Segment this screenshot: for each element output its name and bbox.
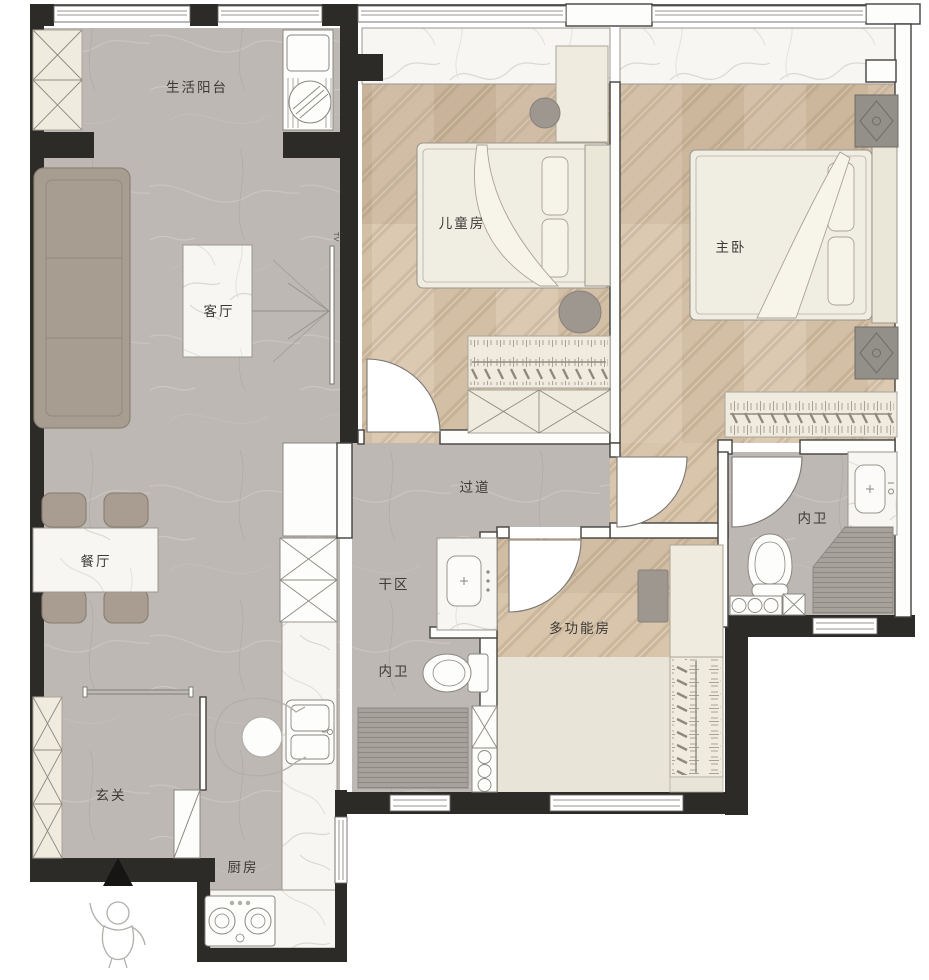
nightstand-bottom xyxy=(855,327,898,379)
room-label-corridor: 过道 xyxy=(460,480,491,495)
bay-window-sill-master xyxy=(620,28,895,84)
wall-living-bedroom xyxy=(340,26,358,443)
window-top-3 xyxy=(358,6,566,22)
floorplan-drawing: TV xyxy=(0,0,929,980)
fridge-cabinet xyxy=(280,538,337,622)
window-top-1 xyxy=(54,6,190,22)
room-label-kitchen: 厨房 xyxy=(228,860,259,875)
bath-right-vanity xyxy=(848,452,897,535)
bath-left-storage xyxy=(472,706,497,792)
room-label-balcony: 生活阳台 xyxy=(166,80,228,95)
shoe-cabinet xyxy=(33,697,62,858)
wall-corridor-bottom xyxy=(581,527,610,538)
kids-desk xyxy=(556,46,608,142)
room-label-master-bedroom: 主卧 xyxy=(716,240,747,255)
master-bed xyxy=(690,147,897,323)
room-label-entry: 玄关 xyxy=(96,787,127,803)
sofa xyxy=(34,168,130,428)
window-bath-right xyxy=(813,618,877,634)
window-bottom-1 xyxy=(390,795,450,811)
shower-left xyxy=(358,708,468,788)
room-label-bath-left: 内卫 xyxy=(379,664,410,679)
window-top-4 xyxy=(652,6,866,22)
master-wardrobe xyxy=(725,392,897,437)
room-label-living: 客厅 xyxy=(204,303,235,319)
bath-right-storage xyxy=(730,594,805,615)
nightstand-top xyxy=(855,95,898,147)
kitchen-tall-cabinet xyxy=(283,443,337,536)
kids-stool xyxy=(530,98,560,128)
room-label-kids-bedroom: 儿童房 xyxy=(439,215,486,231)
window-bottom-2 xyxy=(550,795,683,811)
room-label-dining: 餐厅 xyxy=(81,554,112,569)
wall-balcony-pier-right xyxy=(283,132,358,158)
door-kitchen-leaf xyxy=(174,790,200,858)
room-label-dry-area: 干区 xyxy=(379,577,410,592)
stove xyxy=(205,896,275,946)
multifunction-cabinet xyxy=(670,545,723,657)
tv-label: TV xyxy=(332,232,339,242)
kids-wardrobe xyxy=(468,336,610,433)
dry-area-vanity xyxy=(437,538,497,630)
balcony-cabinet xyxy=(33,30,82,130)
toilet-right xyxy=(748,534,792,597)
room-label-multifunction: 多功能房 xyxy=(549,620,611,636)
dry-area-furniture xyxy=(437,538,497,630)
wall-multifunction-right xyxy=(725,615,748,815)
washing-machine xyxy=(283,30,333,130)
floorplan-canvas: TV xyxy=(0,0,929,980)
platform-multifunction xyxy=(497,657,670,792)
kids-rug xyxy=(559,291,601,333)
wall-between-bedrooms xyxy=(610,82,620,443)
wall-kitchen-bottom xyxy=(197,948,347,962)
window-kitchen-right xyxy=(335,817,347,883)
wall-balcony-pier-left xyxy=(30,132,94,158)
multifunction-wardrobe xyxy=(670,657,723,792)
toilet-left xyxy=(423,654,488,692)
coffee-table xyxy=(183,245,252,357)
multifunction-cushion xyxy=(638,570,668,622)
window-top-2 xyxy=(218,6,322,22)
room-label-bath-right: 内卫 xyxy=(798,511,829,526)
person-figure-entry xyxy=(90,902,145,968)
